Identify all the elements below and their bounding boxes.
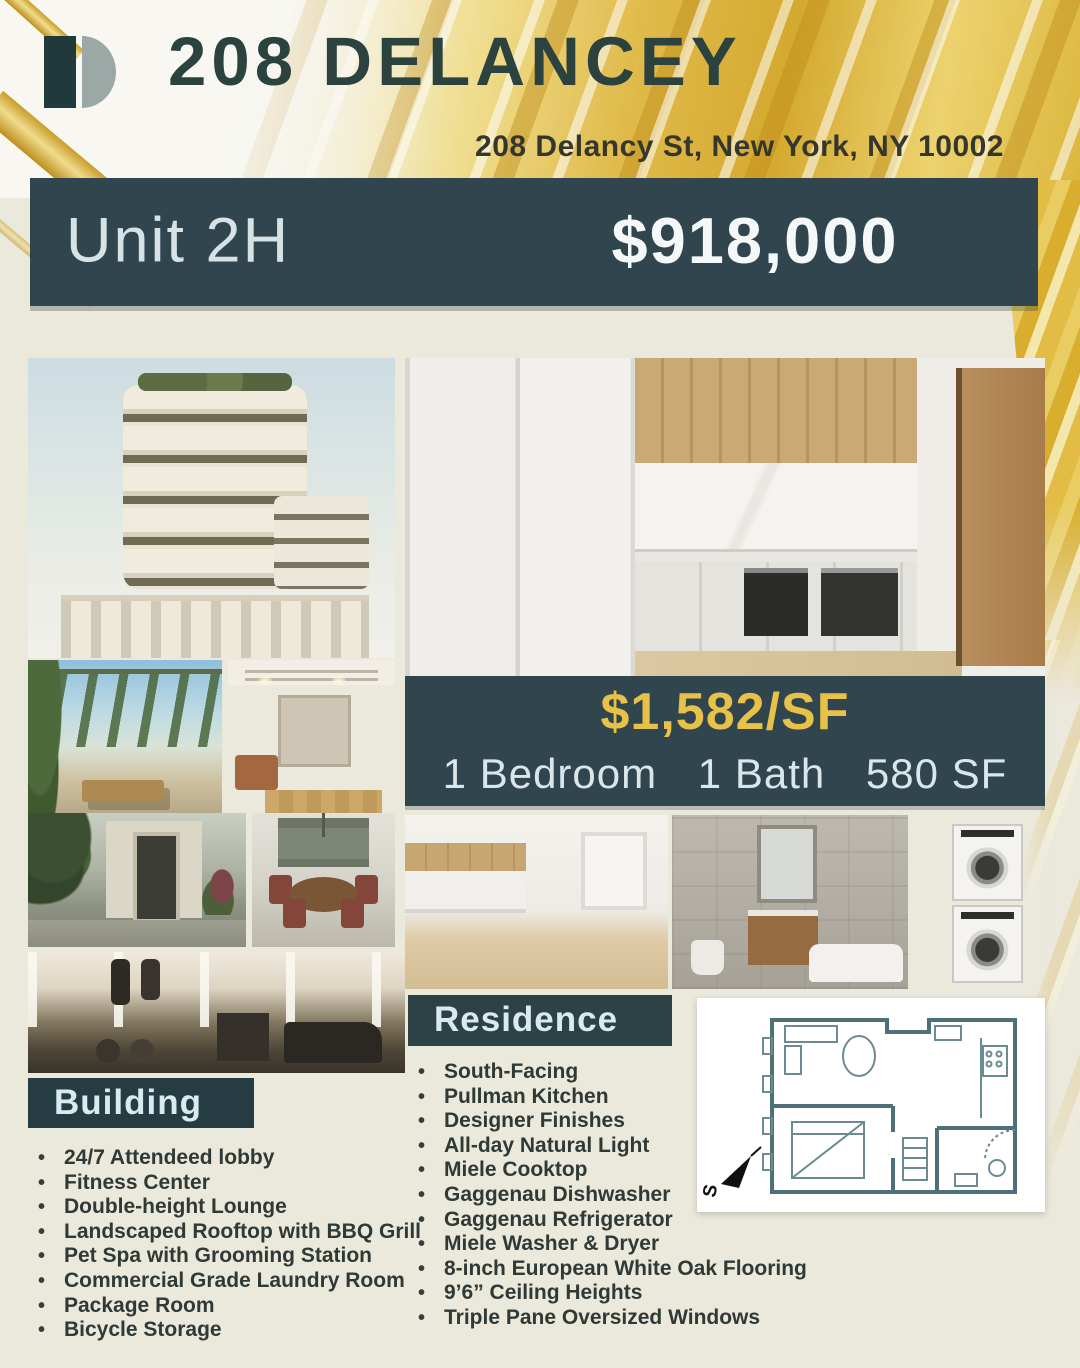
courtyard-photo bbox=[28, 813, 246, 947]
washer-dryer-photo bbox=[926, 815, 1045, 989]
list-item: Miele Cooktop bbox=[414, 1158, 794, 1183]
list-item: Double-height Lounge bbox=[34, 1195, 404, 1220]
area: 580 SF bbox=[866, 750, 1007, 797]
property-address: 208 Delancy St, New York, NY 10002 bbox=[475, 130, 1004, 164]
dryer-shape bbox=[952, 824, 1023, 901]
list-item: 8-inch European White Oak Flooring bbox=[414, 1257, 794, 1282]
building-exterior-photo bbox=[28, 358, 395, 658]
list-item: All-day Natural Light bbox=[414, 1134, 794, 1159]
building-roof-garden-shape bbox=[138, 373, 292, 391]
list-item: Gaggenau Dishwasher bbox=[414, 1183, 794, 1208]
list-item: 24/7 Attendeed lobby bbox=[34, 1146, 404, 1171]
list-item: Fitness Center bbox=[34, 1171, 404, 1196]
list-item: Pullman Kitchen bbox=[414, 1085, 794, 1110]
fitness-center-photo bbox=[28, 952, 405, 1073]
list-item: Triple Pane Oversized Windows bbox=[414, 1306, 794, 1331]
list-item: Bicycle Storage bbox=[34, 1318, 404, 1343]
building-annex-shape bbox=[274, 496, 369, 589]
dining-room-photo bbox=[252, 813, 395, 947]
list-item: Miele Washer & Dryer bbox=[414, 1232, 794, 1257]
list-item: Landscaped Rooftop with BBQ Grill bbox=[34, 1220, 404, 1245]
unit-price-banner: Unit 2H $918,000 bbox=[30, 178, 1038, 306]
real-estate-flyer: 208 DELANCEY 208 Delancy St, New York, N… bbox=[0, 0, 1080, 1368]
list-item: Commercial Grade Laundry Room bbox=[34, 1269, 404, 1294]
residence-section-header: Residence bbox=[408, 995, 672, 1046]
list-item: 9’6” Ceiling Heights bbox=[414, 1281, 794, 1306]
building-podium-shape bbox=[61, 595, 369, 658]
kitchen-photo bbox=[405, 358, 1045, 676]
d-logo-icon bbox=[44, 36, 76, 108]
bedrooms: 1 Bedroom bbox=[443, 750, 657, 797]
unit-label: Unit 2H bbox=[66, 205, 290, 277]
rooftop-terrace-photo bbox=[28, 660, 222, 818]
residence-feature-list: South-Facing Pullman Kitchen Designer Fi… bbox=[414, 1060, 794, 1331]
washer-shape bbox=[952, 905, 1023, 982]
price-label: $918,000 bbox=[570, 203, 940, 278]
list-item: Pet Spa with Grooming Station bbox=[34, 1244, 404, 1269]
unit-stats-box: $1,582/SF 1 Bedroom 1 Bath 580 SF bbox=[405, 676, 1045, 806]
bed-bath-area-line: 1 Bedroom 1 Bath 580 SF bbox=[405, 750, 1045, 798]
price-per-sf: $1,582/SF bbox=[405, 682, 1045, 742]
list-item: Designer Finishes bbox=[414, 1109, 794, 1134]
bathroom-photo bbox=[672, 815, 908, 989]
building-feature-list: 24/7 Attendeed lobby Fitness Center Doub… bbox=[34, 1146, 404, 1343]
list-item: South-Facing bbox=[414, 1060, 794, 1085]
baths: 1 Bath bbox=[698, 750, 825, 797]
lounge-photo bbox=[228, 660, 395, 818]
list-item: Gaggenau Refrigerator bbox=[414, 1208, 794, 1233]
building-section-header: Building bbox=[28, 1078, 254, 1128]
list-item: Package Room bbox=[34, 1294, 404, 1319]
apartment-interior-photo bbox=[405, 815, 668, 989]
page-title: 208 DELANCEY bbox=[168, 22, 888, 101]
